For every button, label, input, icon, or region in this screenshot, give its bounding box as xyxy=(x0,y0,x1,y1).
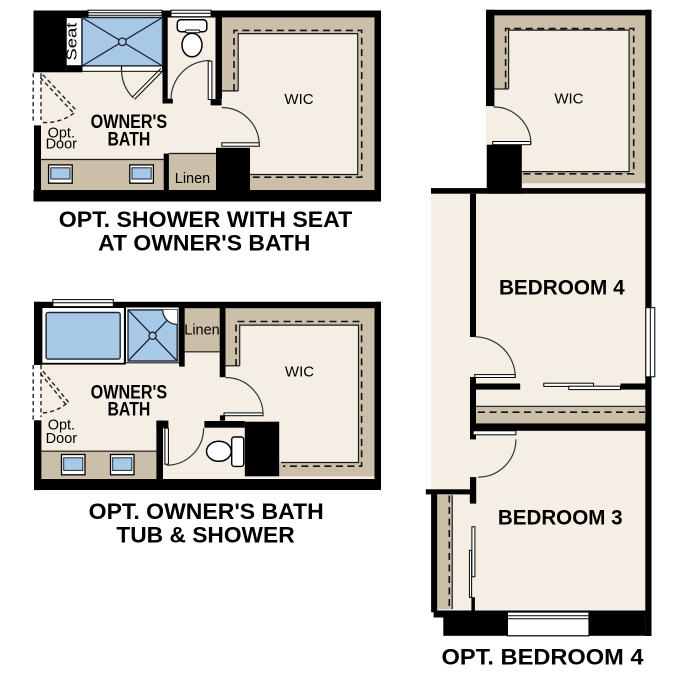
svg-text:WIC: WIC xyxy=(285,364,314,381)
svg-text:OPT. SHOWER WITH SEAT: OPT. SHOWER WITH SEAT xyxy=(59,207,353,232)
svg-text:OPT. OWNER'S BATH: OPT. OWNER'S BATH xyxy=(89,499,324,524)
svg-text:Door: Door xyxy=(46,431,78,447)
svg-text:Door: Door xyxy=(46,137,78,153)
svg-text:TUB & SHOWER: TUB & SHOWER xyxy=(116,522,294,547)
svg-text:Seat: Seat xyxy=(65,23,81,61)
svg-text:Linen: Linen xyxy=(184,323,219,339)
svg-text:BATH: BATH xyxy=(108,400,151,421)
svg-text:BEDROOM 3: BEDROOM 3 xyxy=(498,507,623,530)
svg-text:WIC: WIC xyxy=(284,91,313,108)
svg-text:AT OWNER'S BATH: AT OWNER'S BATH xyxy=(98,231,310,256)
svg-text:Linen: Linen xyxy=(175,171,210,187)
svg-text:OPT. BEDROOM 4: OPT. BEDROOM 4 xyxy=(442,645,645,670)
svg-text:BEDROOM 4: BEDROOM 4 xyxy=(499,277,625,300)
svg-text:WIC: WIC xyxy=(554,91,583,108)
svg-text:BATH: BATH xyxy=(108,129,151,150)
